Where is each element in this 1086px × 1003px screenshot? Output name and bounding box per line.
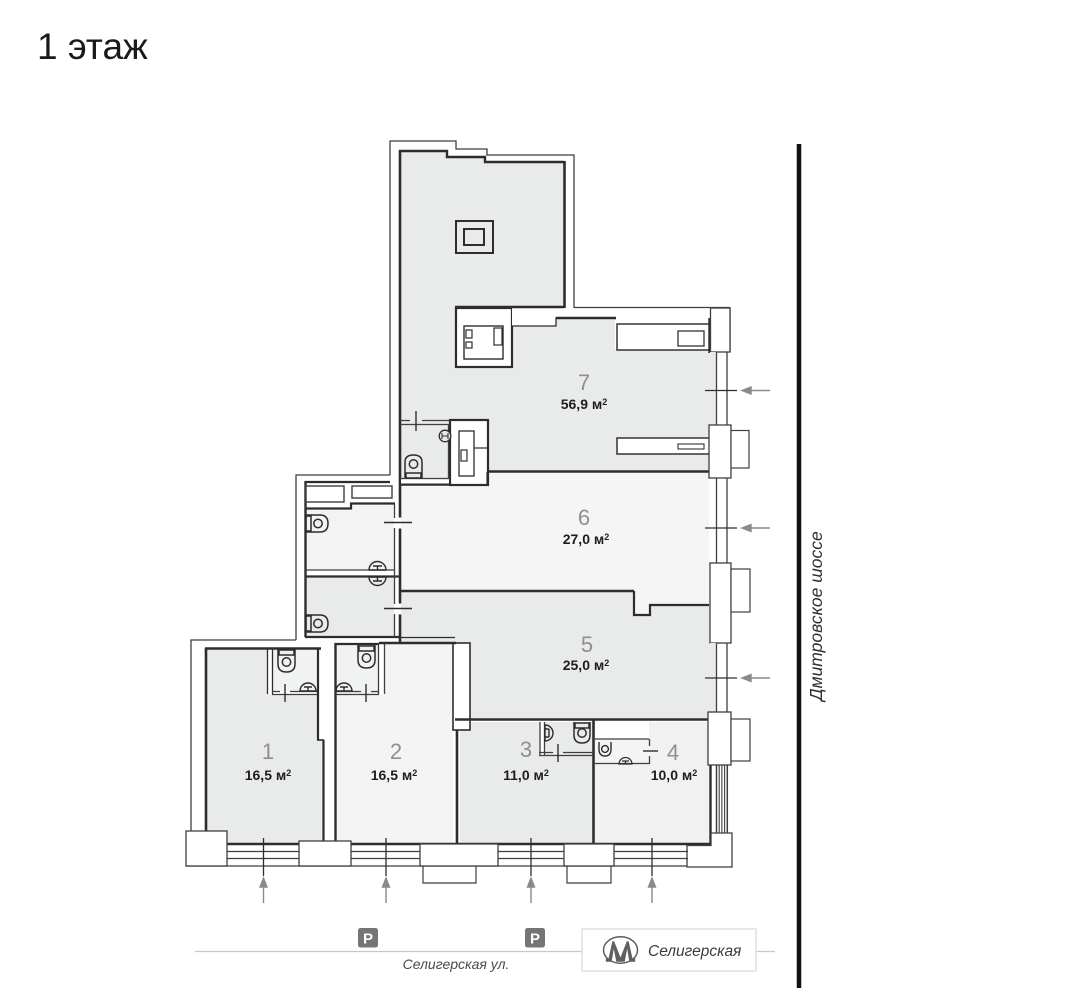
svg-text:27,0 м2: 27,0 м2: [563, 531, 610, 547]
svg-text:2: 2: [390, 739, 402, 764]
svg-text:6: 6: [578, 505, 590, 530]
svg-text:10,0 м2: 10,0 м2: [651, 767, 698, 783]
svg-text:7: 7: [578, 370, 590, 395]
svg-text:Дмитровское шоссе: Дмитровское шоссе: [806, 531, 826, 703]
svg-text:16,5 м2: 16,5 м2: [245, 767, 292, 783]
svg-text:5: 5: [581, 632, 593, 657]
svg-text:56,9 м2: 56,9 м2: [561, 396, 608, 412]
svg-text:Селигерская ул.: Селигерская ул.: [403, 956, 510, 972]
svg-text:25,0 м2: 25,0 м2: [563, 657, 610, 673]
svg-text:1 этаж: 1 этаж: [37, 26, 148, 67]
svg-text:1: 1: [262, 739, 274, 764]
svg-text:P: P: [530, 931, 540, 948]
svg-text:Селигерская: Селигерская: [648, 943, 741, 960]
svg-text:4: 4: [667, 740, 679, 765]
svg-text:16,5 м2: 16,5 м2: [371, 767, 418, 783]
svg-text:P: P: [363, 931, 373, 948]
svg-text:11,0 м2: 11,0 м2: [503, 767, 549, 783]
svg-text:3: 3: [520, 737, 532, 762]
